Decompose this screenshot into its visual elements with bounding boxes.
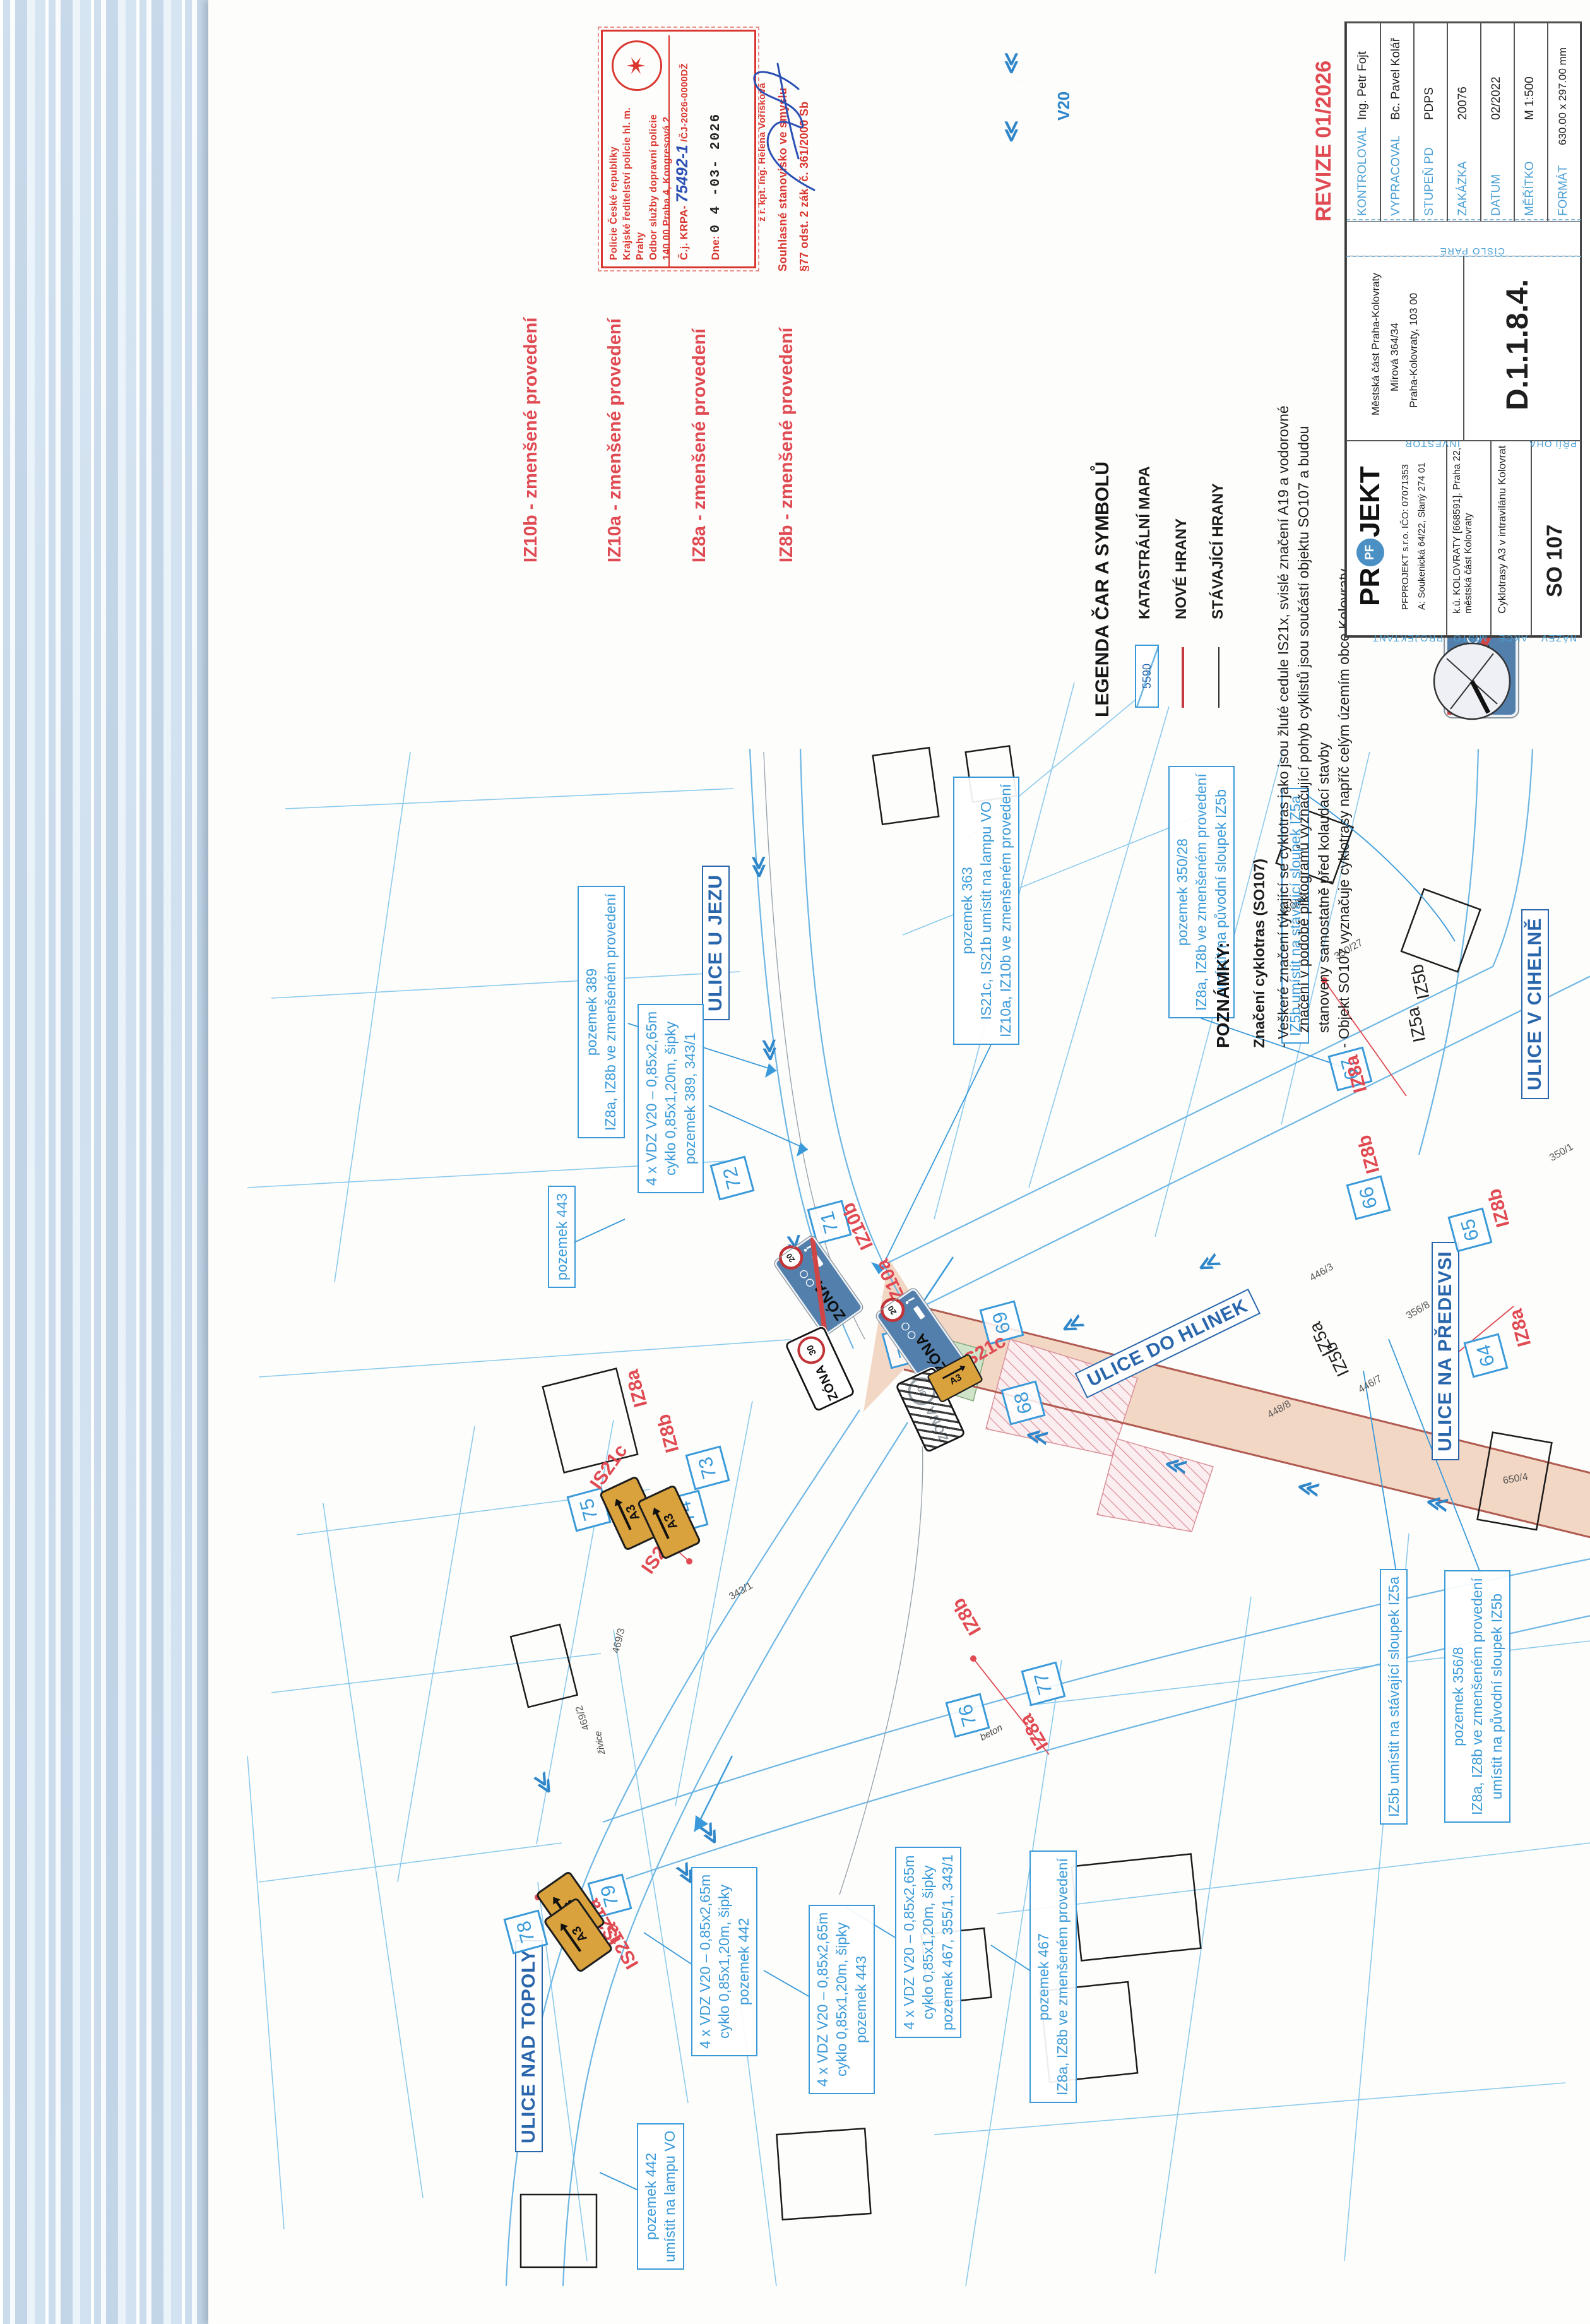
note-line-2: značení v podobě piktogramů vyznačující … [1295, 426, 1312, 1033]
annotation-vdz-442: 4 x VDZ V20 – 0,85x2,65m cyklo 0,85x1,20… [691, 1867, 757, 2056]
v20-label: V20 [1054, 92, 1074, 121]
annotation-pozemek-442-vo: pozemek 442 umístit na lampu VO [637, 2123, 684, 2270]
cycle-chevron: ≪ [747, 855, 769, 879]
row-stupen-pd: STUPEŇ PD PDPS [1413, 22, 1448, 222]
stamp-date-line: Dne: 0 4 -03- 2026 [709, 113, 723, 260]
north-compass [1432, 641, 1512, 722]
bicycle-icon [797, 1269, 814, 1289]
misto-cell: MÍSTO k.ú. KOLOVRATY [668591], Praha 22,… [1446, 440, 1492, 636]
projektant-cell: PROJEKTANT PRPFJEKT PFPROJEKT s.r.o. IČO… [1346, 440, 1447, 636]
street-label-nad-topoly: ULICE NAD TOPOLY [515, 1940, 543, 2152]
legend-label-iz10b: IZ10b - zmenšené provedení [521, 318, 542, 563]
row-datum: DATUM 02/2022 [1480, 22, 1515, 222]
cycle-chevron: ≪ [1163, 1453, 1189, 1478]
street-label-v-cihelne: ULICE V CIHELNĚ [1521, 909, 1549, 1099]
legend-stavajici-hrany: STÁVAJÍCÍ HRANY [1209, 483, 1227, 619]
v20-symbol-group: ≪ ≪ [1000, 120, 1022, 143]
legend-nove-hrany: NOVÉ HRANY [1173, 518, 1190, 619]
notes-title: POZNÁMKY: [1213, 943, 1233, 1048]
stamp-cj-line: Č.j. KRPA- 75492-1 /ČJ-2026-0000DŽ [673, 63, 692, 260]
bicycle-icon [899, 1321, 916, 1341]
legend-katastralni-mapa: KATASTRÁLNÍ MAPA [1136, 466, 1154, 619]
date-stamp: 0 4 -03- 2026 [709, 113, 723, 233]
cycle-chevron: ≪ [758, 1038, 781, 1062]
note-line-1: - Veškeré značení týkající se cyklotras … [1275, 405, 1292, 1048]
legend-label-iz8a: IZ8a - zmenšené provedení [689, 328, 710, 563]
pedestrian-icon [802, 1242, 815, 1254]
handwritten-file-number: 75492-1 [673, 145, 691, 203]
pfprojekt-logo: PRPFJEKT [1355, 466, 1386, 606]
stamp-office-block: Policie České republiky Krajské ředitels… [608, 102, 674, 260]
annotation-vdz-443: 4 x VDZ V20 – 0,85x2,65m cyklo 0,85x1,20… [809, 1905, 875, 2094]
annotation-vdz-389: 4 x VDZ V20 – 0,85x2,65m cyklo 0,85x1,20… [638, 1004, 704, 1193]
investor-cell: INVESTOR Městská část Praha-Kolovraty Mí… [1346, 256, 1464, 441]
cycle-chevron: ≪ [1000, 52, 1022, 74]
annotation-vdz-467: 4 x VDZ V20 – 0,85x2,65m cyklo 0,85x1,20… [895, 1847, 961, 2038]
street-label-na-predevsi: ULICE NA PŘEDEVSI [1432, 1242, 1459, 1460]
row-meritko: MĚŘÍTKO M 1:500 [1514, 22, 1548, 222]
annotation-pozemek-443: pozemek 443 [548, 1186, 576, 1288]
police-stamp: Policie České republiky Krajské ředitels… [601, 30, 756, 268]
row-zakazka: ZAKÁZKA 20076 [1447, 22, 1481, 222]
drawing-sheet: ULICE U JEZU ULICE V CIHELNĚ ULICE DO HL… [208, 0, 1590, 2324]
cadastre-symbol: 5590 [1135, 645, 1159, 708]
annotation-pozemek-467: pozemek 467 IZ8a, IZ8b ve zmenšeném prov… [1029, 1850, 1077, 2103]
annotation-pozemek-389: pozemek 389 IZ8a, IZ8b ve zmenšeném prov… [578, 886, 625, 1138]
title-block: PROJEKTANT PRPFJEKT PFPROJEKT s.r.o. IČO… [1344, 21, 1582, 638]
line-legend-title: LEGENDA ČAR A SYMBOLŮ [1092, 462, 1113, 717]
nazev-cell: NÁZEV SO 107 [1531, 440, 1581, 636]
landscape-canvas: ULICE U JEZU ULICE V CIHELNĚ ULICE DO HL… [208, 0, 1590, 2324]
cislo-pare-cell: ČÍSLO PARÉ [1346, 219, 1581, 257]
legend-label-iz8b: IZ8b - zmenšené provedení [776, 328, 797, 563]
notes-subtitle: Značení cyklotras (SO107) [1251, 859, 1269, 1048]
annotation-pozemek-356-8: pozemek 356/8 IZ8a, IZ8b ve zmenšeném pr… [1444, 1570, 1510, 1823]
row-vypracoval: VYPRACOVAL Bc. Pavel Kolář [1380, 22, 1415, 222]
row-format: FORMÁT 630.00 x 297.00 mm [1547, 22, 1581, 222]
car-icon [811, 1253, 823, 1267]
cycle-chevron: ≪ [999, 120, 1023, 143]
police-emblem-icon: ✶ [612, 40, 662, 91]
street-label-u-jezu: ULICE U JEZU [702, 866, 730, 1020]
existing-edges-symbol [1218, 647, 1219, 708]
legend-label-iz10a: IZ10a - zmenšené provedení [605, 318, 626, 563]
stamp-divider [668, 35, 670, 266]
revision-note: REVIZE 01/2026 [1312, 61, 1336, 222]
car-icon [913, 1306, 925, 1320]
note-line-4: - Objekt SO107 vyznačuje cyklotrasy např… [1336, 569, 1353, 1048]
cycle-chevron: ≪ [1024, 1424, 1050, 1449]
priloha-cell: PŘÍLOHA D.1.1.8.4. [1463, 256, 1581, 441]
annotation-pozemek-363: pozemek 363 IS21c, IS21b umístit na lamp… [953, 777, 1019, 1045]
scanner-edge-strip [0, 0, 208, 2324]
akce-cell: AKCE Cyklotrasy A3 v intravilánu Kolovra… [1490, 440, 1532, 636]
new-edges-symbol [1182, 647, 1184, 708]
cycle-chevron: ≪ [1425, 1491, 1451, 1516]
signature [739, 57, 833, 196]
pedestrian-icon [904, 1295, 917, 1306]
cycle-chevron: ≪ [1296, 1475, 1322, 1501]
annotation-iz5b-sloupek-2: IZ5b umístit na stávající sloupek IZ5a [1380, 1569, 1408, 1825]
row-kontroloval: KONTROLOVAL Ing. Petr Fojt [1346, 22, 1381, 222]
note-line-3: stanoveny samostatně před kolaudací stav… [1315, 742, 1332, 1033]
